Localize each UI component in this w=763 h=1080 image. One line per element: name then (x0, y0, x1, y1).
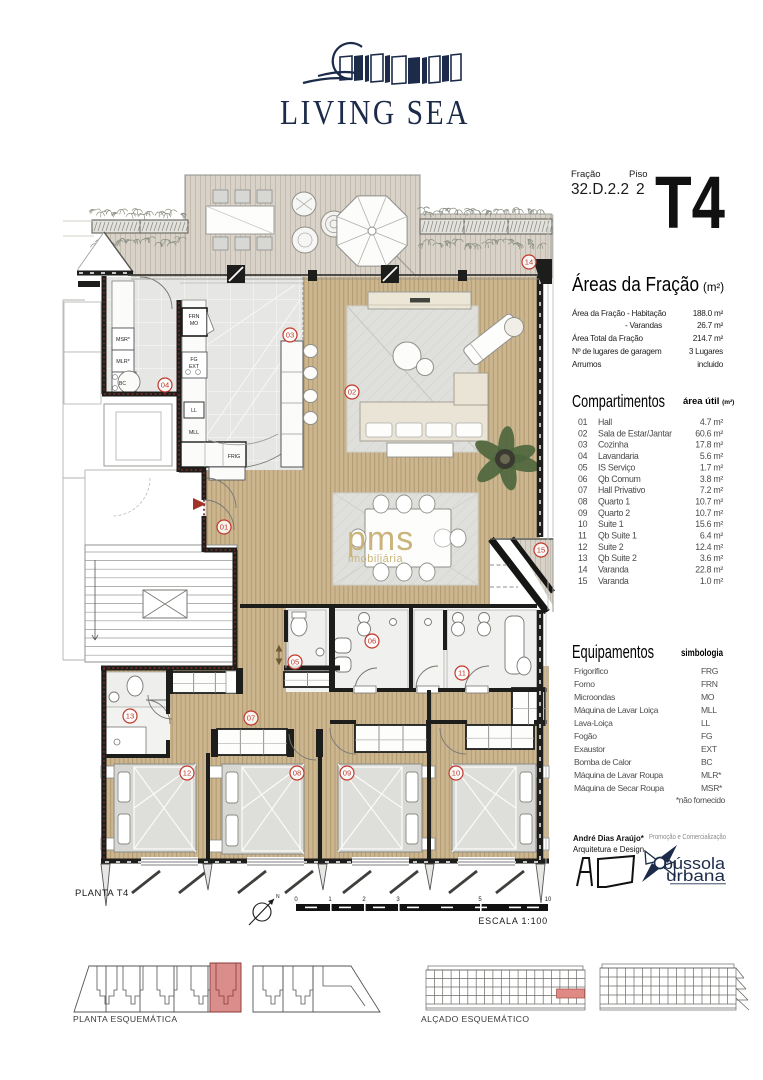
svg-text:MO: MO (701, 692, 715, 702)
svg-text:PLANTA T4: PLANTA T4 (75, 888, 129, 899)
svg-text:Área Total da Fração: Área Total da Fração (572, 333, 644, 343)
svg-text:Exaustor: Exaustor (574, 744, 606, 754)
svg-text:3 Lugares: 3 Lugares (689, 347, 723, 356)
svg-text:7.2 m²: 7.2 m² (700, 485, 724, 495)
svg-text:Microondas: Microondas (574, 692, 615, 702)
svg-text:FRN: FRN (701, 679, 718, 689)
svg-text:04: 04 (578, 451, 588, 461)
svg-text:Máquina de Secar Roupa: Máquina de Secar Roupa (574, 783, 664, 793)
svg-text:09: 09 (343, 769, 351, 778)
svg-text:Hall: Hall (598, 417, 612, 427)
svg-text:ALÇADO ESQUEMÁTICO: ALÇADO ESQUEMÁTICO (421, 1014, 529, 1024)
svg-text:- Varandas: - Varandas (625, 321, 662, 330)
svg-text:11: 11 (458, 669, 466, 678)
svg-text:14: 14 (578, 565, 588, 575)
svg-text:MLL: MLL (701, 705, 717, 715)
svg-text:Frigorifico: Frigorifico (574, 666, 608, 676)
svg-text:15: 15 (537, 546, 545, 555)
svg-text:5.6 m²: 5.6 m² (700, 451, 724, 461)
svg-text:10: 10 (452, 769, 460, 778)
svg-text:02: 02 (348, 388, 356, 397)
svg-text:13: 13 (578, 553, 588, 563)
svg-text:Máquina de Lavar Roupa: Máquina de Lavar Roupa (574, 770, 663, 780)
svg-text:Lava-Loiça: Lava-Loiça (574, 718, 613, 728)
svg-text:Qb Comum: Qb Comum (598, 474, 641, 484)
svg-text:Qb Suite 1: Qb Suite 1 (598, 531, 637, 541)
svg-text:06: 06 (578, 474, 588, 484)
svg-text:02: 02 (578, 428, 588, 438)
svg-text:Fogão: Fogão (574, 731, 597, 741)
svg-text:LL: LL (701, 718, 710, 728)
svg-text:10: 10 (545, 897, 552, 903)
svg-text:T4: T4 (655, 161, 725, 244)
svg-text:MLL: MLL (189, 430, 199, 436)
svg-text:3.8 m²: 3.8 m² (700, 474, 724, 484)
svg-text:Quarto 2: Quarto 2 (598, 508, 630, 518)
svg-text:MLR*: MLR* (116, 359, 130, 365)
svg-text:15.6 m²: 15.6 m² (695, 519, 723, 529)
svg-text:EXT: EXT (189, 364, 200, 370)
svg-text:MO: MO (190, 321, 198, 327)
svg-text:FRN: FRN (189, 314, 200, 320)
svg-text:imobiliária: imobiliária (348, 553, 403, 565)
svg-text:EXT: EXT (701, 744, 718, 754)
svg-text:214.7 m²: 214.7 m² (693, 334, 724, 343)
svg-text:1.7 m²: 1.7 m² (700, 462, 724, 472)
svg-text:Cozinha: Cozinha (598, 440, 629, 450)
svg-text:08: 08 (293, 769, 301, 778)
svg-text:12: 12 (183, 769, 191, 778)
svg-text:Qb Suite 2: Qb Suite 2 (598, 553, 637, 563)
svg-text:LL: LL (191, 408, 197, 414)
svg-text:3: 3 (396, 897, 400, 903)
svg-text:Compartimentos: Compartimentos (572, 391, 665, 411)
svg-text:MLR*: MLR* (701, 770, 722, 780)
svg-text:Fração: Fração (571, 169, 601, 180)
svg-text:2: 2 (636, 181, 645, 198)
svg-text:26.7 m²: 26.7 m² (697, 321, 724, 330)
svg-text:01: 01 (578, 417, 588, 427)
svg-text:22.8 m²: 22.8 m² (695, 565, 723, 575)
svg-text:Sala de Estar/Jantar: Sala de Estar/Jantar (598, 428, 672, 438)
svg-text:MSR*: MSR* (116, 337, 131, 343)
svg-text:*não fornecido: *não fornecido (676, 795, 726, 805)
svg-text:LIVING SEA: LIVING SEA (280, 93, 470, 132)
svg-text:Piso: Piso (629, 169, 647, 180)
svg-text:Quarto 1: Quarto 1 (598, 497, 630, 507)
svg-text:FG: FG (701, 731, 713, 741)
svg-text:6.4 m²: 6.4 m² (700, 531, 724, 541)
svg-text:13: 13 (126, 712, 134, 721)
svg-text:área útil (m²): área útil (m²) (683, 396, 734, 407)
svg-text:07: 07 (247, 714, 255, 723)
svg-text:05: 05 (291, 658, 299, 667)
svg-text:0: 0 (294, 897, 298, 903)
svg-text:03: 03 (578, 440, 588, 450)
svg-text:12: 12 (578, 542, 588, 552)
svg-text:07: 07 (578, 485, 588, 495)
svg-text:188.0 m²: 188.0 m² (693, 309, 724, 318)
svg-text:Lavandaria: Lavandaria (598, 451, 639, 461)
svg-text:09: 09 (578, 508, 588, 518)
svg-text:12.4 m²: 12.4 m² (695, 542, 723, 552)
svg-text:11: 11 (578, 531, 587, 541)
svg-text:Área da Fração - Habitação: Área da Fração - Habitação (572, 308, 667, 318)
svg-text:1.0 m²: 1.0 m² (700, 576, 724, 586)
svg-text:MSR*: MSR* (701, 783, 723, 793)
svg-text:60.6 m²: 60.6 m² (695, 428, 723, 438)
svg-text:simbologia: simbologia (681, 648, 723, 659)
svg-text:ESCALA 1:100: ESCALA 1:100 (478, 916, 548, 926)
svg-text:06: 06 (368, 637, 376, 646)
svg-text:BC: BC (119, 381, 126, 387)
svg-text:10: 10 (578, 519, 588, 529)
svg-text:PLANTA ESQUEMÁTICA: PLANTA ESQUEMÁTICA (73, 1014, 177, 1024)
svg-text:Suite 1: Suite 1 (598, 519, 624, 529)
svg-text:Forno: Forno (574, 679, 595, 689)
svg-text:Arrumos: Arrumos (572, 360, 601, 369)
svg-text:01: 01 (220, 523, 228, 532)
svg-text:Máquina de Lavar Loiça: Máquina de Lavar Loiça (574, 705, 659, 715)
svg-text:Arquitetura e Design: Arquitetura e Design (573, 845, 644, 854)
svg-text:André Dias Araújo*: André Dias Araújo* (573, 834, 645, 843)
svg-text:IS Serviço: IS Serviço (598, 462, 635, 472)
svg-text:N: N (276, 894, 280, 900)
svg-text:14: 14 (525, 258, 533, 267)
svg-text:FRIG: FRIG (228, 454, 240, 460)
svg-text:Hall Privativo: Hall Privativo (598, 485, 646, 495)
svg-text:Nº de lugares de garagem: Nº de lugares de garagem (572, 347, 662, 356)
svg-text:04: 04 (161, 381, 169, 390)
svg-text:Varanda: Varanda (598, 576, 629, 586)
svg-text:Varanda: Varanda (598, 565, 629, 575)
svg-text:FRG: FRG (701, 666, 719, 676)
svg-text:10.7 m²: 10.7 m² (695, 508, 723, 518)
svg-text:32.D.2.2: 32.D.2.2 (571, 181, 629, 198)
svg-text:FG: FG (190, 357, 197, 363)
svg-text:03: 03 (286, 331, 294, 340)
svg-text:10.7 m²: 10.7 m² (695, 497, 723, 507)
svg-text:Suite 2: Suite 2 (598, 542, 624, 552)
svg-text:05: 05 (578, 462, 588, 472)
svg-text:3.6 m²: 3.6 m² (700, 553, 724, 563)
svg-text:1: 1 (328, 897, 332, 903)
svg-text:17.8 m²: 17.8 m² (695, 440, 723, 450)
svg-text:2: 2 (362, 897, 366, 903)
svg-text:5: 5 (478, 897, 482, 903)
svg-text:Bomba de Calor: Bomba de Calor (574, 757, 632, 767)
svg-text:Promoção e Comercialização: Promoção e Comercialização (649, 832, 726, 841)
svg-text:15: 15 (578, 576, 588, 586)
svg-text:Equipamentos: Equipamentos (572, 642, 654, 662)
svg-text:4.7 m²: 4.7 m² (700, 417, 724, 427)
svg-text:urbana: urbana (666, 868, 725, 885)
svg-text:Áreas da Fração: Áreas da Fração (572, 273, 699, 296)
svg-text:08: 08 (578, 497, 588, 507)
svg-text:incluido: incluido (697, 360, 723, 369)
svg-text:(m²): (m²) (703, 282, 724, 294)
svg-text:BC: BC (701, 757, 712, 767)
